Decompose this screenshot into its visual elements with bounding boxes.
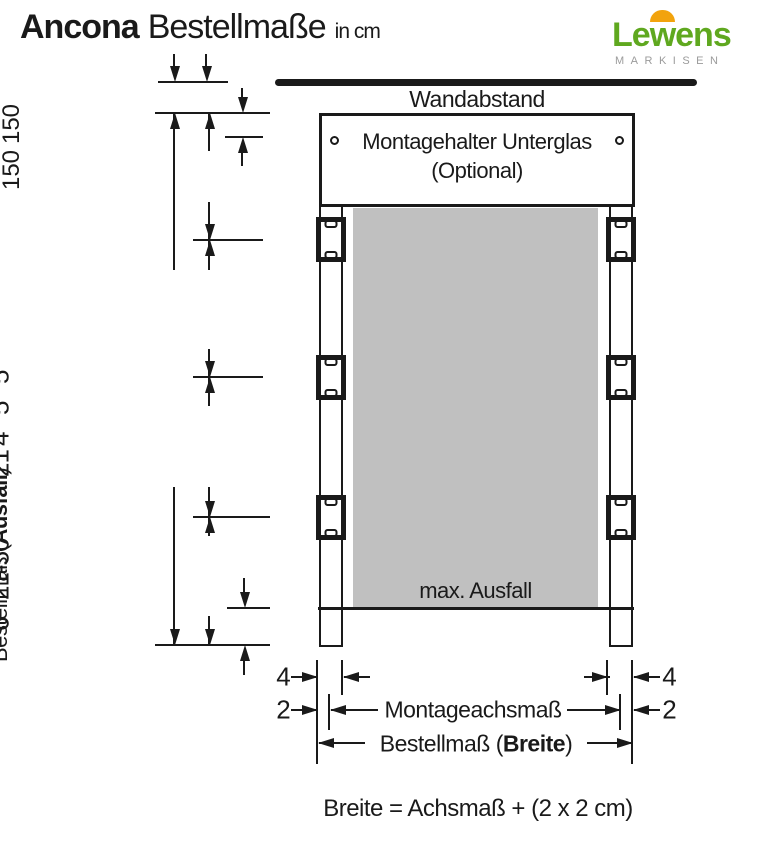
dim-line	[193, 376, 263, 378]
mounting-bracket	[316, 495, 346, 540]
arrowhead-icon	[170, 629, 180, 645]
arrowhead-icon	[205, 629, 215, 645]
arrowhead-icon	[343, 672, 359, 682]
bracket-slot-icon	[325, 529, 338, 537]
arrowhead-icon	[238, 97, 248, 113]
dim-label-4-bottom-right: 4	[662, 662, 675, 693]
wall-bar	[275, 79, 697, 86]
right-guide-rail	[609, 205, 633, 647]
bracket-slot-icon	[615, 529, 628, 537]
dim-line	[243, 578, 245, 592]
order-dimensions-diagram: Ancona Bestellmaße in cm Lewens MARKISEN…	[0, 0, 768, 843]
bracket-slot-icon	[615, 251, 628, 259]
bracket-slot-icon	[325, 389, 338, 397]
ausfall-bold: Ausfall	[0, 475, 12, 545]
fabric-panel: max. Ausfall	[353, 208, 598, 609]
holder-label-line1: Montagehalter Unterglas	[362, 127, 591, 156]
brand-name: Lewens	[612, 18, 731, 52]
title-subtitle: Bestellmaße	[148, 8, 326, 47]
mounting-bracket	[316, 217, 346, 262]
dim-label-breite: Bestellmaß (Breite)	[380, 731, 572, 758]
arrowhead-icon	[633, 705, 649, 715]
dim-label-4-bottom-left: 4	[276, 662, 289, 693]
ausfall-post: )	[0, 468, 12, 475]
bracket-slot-icon	[325, 358, 338, 366]
arrowhead-icon	[592, 672, 608, 682]
arrowhead-icon	[202, 66, 212, 82]
arrowhead-icon	[302, 672, 318, 682]
brand-logo: Lewens MARKISEN	[612, 18, 731, 67]
arrowhead-icon	[318, 738, 334, 748]
breite-post: )	[565, 731, 572, 757]
arrowhead-icon	[205, 517, 215, 533]
dim-line	[193, 239, 263, 241]
bracket-slot-icon	[325, 251, 338, 259]
dim-line	[158, 81, 228, 83]
title-unit: in cm	[335, 20, 380, 44]
panel-bottom-line	[318, 607, 634, 610]
arrowhead-icon	[617, 738, 633, 748]
width-formula: Breite = Achsmaß + (2 x 2 cm)	[278, 795, 678, 823]
product-name: Ancona	[20, 8, 139, 47]
arrowhead-icon	[302, 705, 318, 715]
bracket-slot-icon	[325, 498, 338, 506]
mounting-bracket	[606, 217, 636, 262]
dim-line	[173, 487, 175, 645]
dim-line	[241, 152, 243, 166]
bracket-slot-icon	[615, 220, 628, 228]
dim-label-ausfall: Bestellmaß (Ausfall)	[0, 0, 13, 662]
breite-pre: Bestellmaß (	[380, 731, 503, 757]
arrowhead-icon	[240, 592, 250, 608]
arrowhead-icon	[605, 705, 621, 715]
brand-name-w: w	[650, 18, 675, 52]
wall-distance-label: Wandabstand	[319, 86, 635, 113]
bracket-slot-icon	[615, 498, 628, 506]
bracket-slot-icon	[325, 220, 338, 228]
brand-name-part: Le	[612, 16, 650, 54]
dim-line	[173, 113, 175, 270]
mounting-holder-box: Montagehalter Unterglas (Optional)	[319, 113, 635, 207]
arrowhead-icon	[205, 501, 215, 517]
holder-screw-right-icon	[615, 136, 624, 145]
mounting-bracket	[606, 495, 636, 540]
dim-label-2-bottom-left: 2	[276, 695, 289, 726]
mounting-bracket	[316, 355, 346, 400]
mounting-bracket	[606, 355, 636, 400]
arrowhead-icon	[205, 240, 215, 256]
brand-tagline: MARKISEN	[612, 55, 731, 67]
arrowhead-icon	[205, 377, 215, 393]
page-title: Ancona Bestellmaße in cm	[20, 8, 380, 47]
breite-bold: Breite	[503, 731, 565, 757]
left-guide-rail	[319, 205, 343, 647]
arrowhead-icon	[240, 645, 250, 661]
dim-label-2-bottom-right: 2	[662, 695, 675, 726]
holder-screw-left-icon	[330, 136, 339, 145]
arrowhead-icon	[205, 361, 215, 377]
holder-label-line2: (Optional)	[431, 156, 523, 185]
arrowhead-icon	[170, 66, 180, 82]
arrowhead-icon	[238, 137, 248, 153]
arrowhead-icon	[330, 705, 346, 715]
dim-line	[243, 661, 245, 675]
ausfall-pre: Bestellmaß (	[0, 545, 12, 662]
brand-name-part: ens	[675, 16, 731, 54]
arrowhead-icon	[633, 672, 649, 682]
bracket-slot-icon	[615, 389, 628, 397]
dim-label-achsmass: Montageachsmaß	[384, 697, 561, 724]
max-ausfall-label: max. Ausfall	[353, 578, 598, 604]
arrowhead-icon	[205, 113, 215, 129]
bracket-slot-icon	[615, 358, 628, 366]
arrowhead-icon	[170, 113, 180, 129]
arrowhead-icon	[205, 224, 215, 240]
